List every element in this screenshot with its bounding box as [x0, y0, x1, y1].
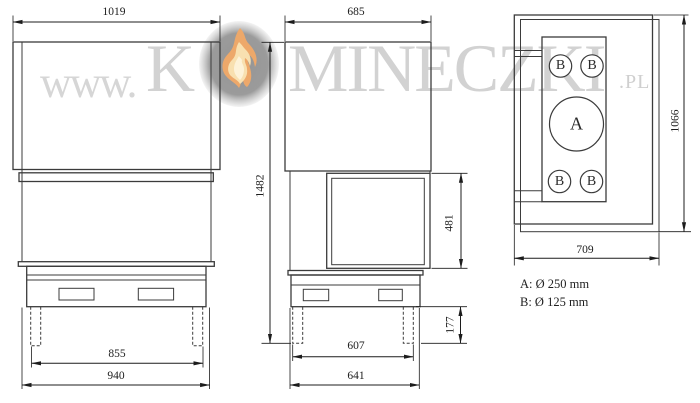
legend-outlet-b: B: Ø 125 mm: [520, 294, 589, 312]
front-leg-right: [193, 307, 203, 346]
technical-drawing-page: www. K MINECZKI .pl: [0, 0, 700, 403]
front-leg-left: [31, 307, 41, 346]
diameter-legend: A: Ø 250 mm B: Ø 125 mm: [520, 276, 589, 311]
dim-label-685: 685: [347, 7, 364, 19]
dim-label-855: 855: [108, 349, 125, 361]
front-vent-left: [59, 288, 94, 300]
side-vent-right: [379, 289, 403, 300]
dim-label-177: 177: [445, 316, 457, 333]
dim-label-1482: 1482: [255, 175, 267, 198]
front-hood-trim: [19, 173, 213, 182]
dim-label-1019: 1019: [103, 7, 126, 19]
outlet-label-a: A: [570, 114, 583, 135]
outlet-label-b3: B: [555, 174, 564, 190]
front-dim-top-width: [13, 16, 220, 42]
outlet-label-b1: B: [556, 58, 565, 74]
side-glass-frame: [327, 173, 430, 268]
dim-label-481: 481: [444, 214, 456, 231]
dim-label-607: 607: [347, 341, 364, 353]
front-base-plate: [18, 262, 214, 267]
side-hood: [285, 42, 431, 171]
front-hood: [13, 42, 220, 170]
dim-label-709: 709: [576, 245, 593, 257]
side-glass: [332, 178, 425, 264]
side-base-plate: [288, 271, 423, 276]
front-view: [13, 16, 220, 390]
side-vent-left: [303, 289, 328, 300]
dim-label-641: 641: [347, 371, 364, 383]
side-leg-right: [403, 307, 413, 344]
side-dim-plinth-height: [416, 307, 467, 344]
side-view: [262, 16, 468, 390]
outlet-label-b2: B: [587, 58, 596, 74]
dim-label-940: 940: [107, 371, 124, 383]
dim-label-1066: 1066: [670, 110, 682, 133]
front-vent-right: [138, 288, 173, 300]
outlet-label-b4: B: [587, 174, 596, 190]
top-view: [514, 15, 691, 266]
side-plinth-panel: [291, 275, 420, 307]
side-leg-left: [293, 307, 303, 344]
front-plinth-panel: [27, 266, 206, 306]
legend-outlet-a: A: Ø 250 mm: [520, 276, 589, 294]
side-dim-top-depth: [285, 16, 431, 42]
